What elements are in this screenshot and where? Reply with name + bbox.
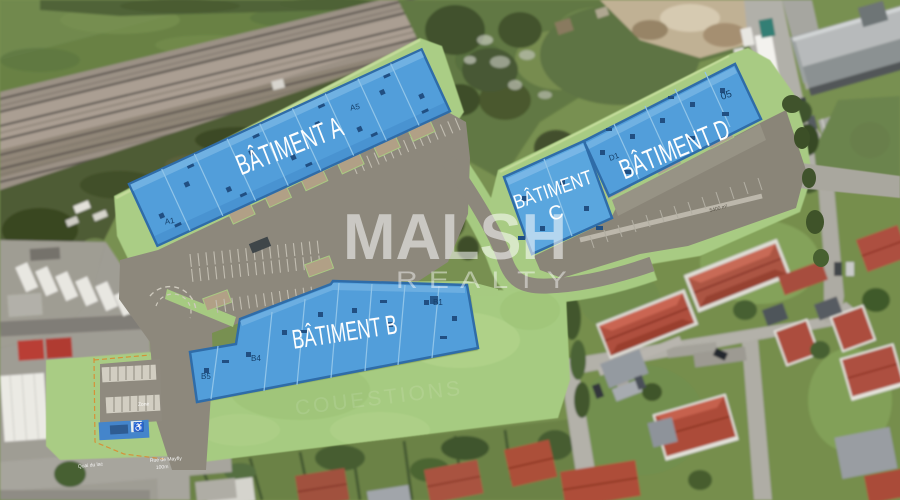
svg-text:B5: B5	[201, 372, 211, 381]
svg-text:MALSH: MALSH	[343, 200, 567, 273]
svg-text:REALTY: REALTY	[396, 267, 578, 294]
svg-text:B4: B4	[251, 354, 261, 363]
svg-text:♿: ♿	[133, 421, 144, 432]
svg-text:100m: 100m	[156, 464, 169, 471]
svg-text:Zone: Zone	[138, 401, 150, 408]
svg-text:B1: B1	[433, 298, 443, 307]
